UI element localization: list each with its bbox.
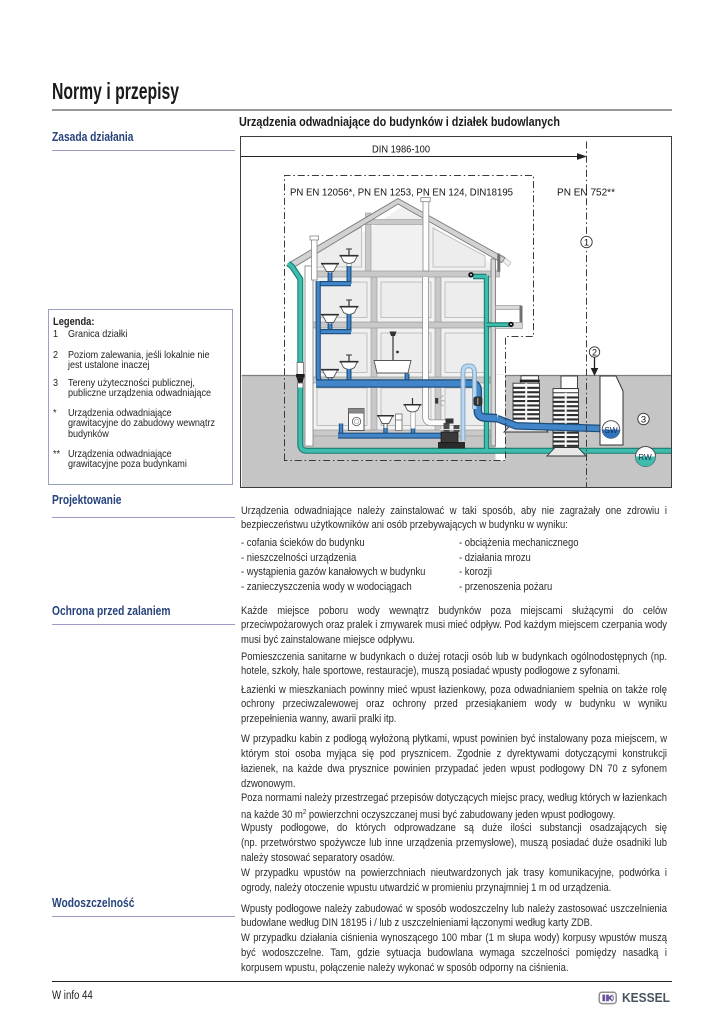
svg-text:SW: SW: [604, 426, 617, 435]
svg-text:PN EN 12056*, PN EN 1253, PN E: PN EN 12056*, PN EN 1253, PN EN 124, DIN…: [290, 187, 513, 199]
svg-text:2: 2: [592, 347, 597, 357]
svg-text:PN EN 752**: PN EN 752**: [557, 187, 615, 199]
svg-text:3: 3: [641, 415, 646, 426]
svg-text:DIN 1986-100: DIN 1986-100: [372, 144, 430, 156]
svg-text:RW: RW: [638, 453, 652, 462]
svg-text:KESSEL: KESSEL: [622, 991, 670, 1005]
svg-text:1: 1: [584, 238, 589, 249]
